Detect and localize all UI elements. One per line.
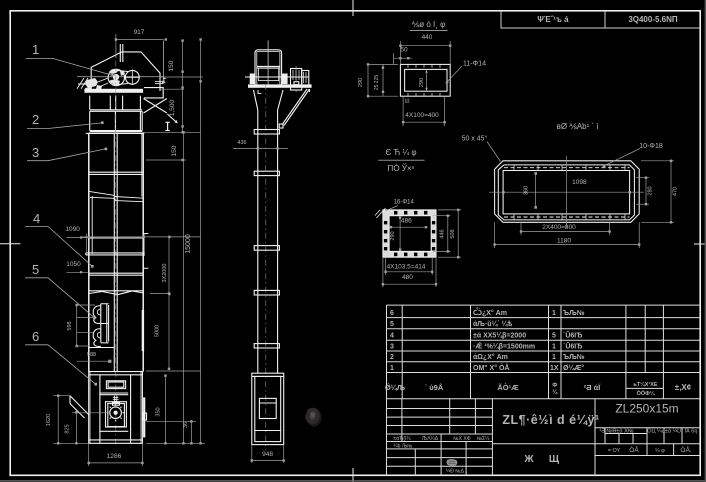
svg-text:¼ƅ Љ№: ¼ƅ Љ№ — [394, 444, 413, 450]
svg-text:290: 290 — [390, 231, 396, 240]
svg-text:ΙΆ 6ŋ: ΙΆ 6ŋ — [685, 429, 698, 435]
svg-text:486: 486 — [401, 218, 412, 225]
svg-text:¹Ƌ №Ɵ: ¹Ƌ №Ɵ — [599, 429, 617, 435]
svg-text:5: 5 — [552, 333, 556, 340]
svg-text:±ά Χ№: ±ά Χ№ — [616, 428, 633, 435]
svg-text:4X100=400: 4X100=400 — [405, 112, 439, 119]
svg-text:440: 440 — [422, 34, 433, 41]
svg-text:1,500: 1,500 — [169, 99, 176, 116]
svg-text:1: 1 — [552, 354, 556, 361]
svg-text:948: 948 — [262, 451, 273, 458]
svg-text:1: 1 — [32, 42, 39, 57]
svg-text:Ф: Ф — [552, 383, 557, 389]
svg-text:6: 6 — [390, 310, 394, 317]
svg-text:⅍ø ó Ι¸ φ: ⅍ø ó Ι¸ φ — [412, 20, 446, 29]
svg-text:ZL¶·ê½ì d é¼ÿ¹: ZL¶·ê½ì d é¼ÿ¹ — [502, 413, 599, 427]
svg-text:΄Ŭ6ΙЂ: ΄Ŭ6ΙЂ — [563, 331, 582, 340]
svg-text:΄Ŭ6ΙЂ: ΄Ŭ6ΙЂ — [563, 342, 582, 351]
svg-text:50 x 45°: 50 x 45° — [462, 135, 488, 143]
svg-text:280: 280 — [648, 186, 654, 195]
svg-text:480: 480 — [402, 274, 413, 281]
svg-text:±ά XΧ5¼β=2000: ±ά XΧ5¼β=2000 — [473, 332, 526, 340]
svg-text:ÃÒ¹Æ: ÃÒ¹Æ — [497, 383, 519, 392]
svg-text:¼Ð №Δ: ¼Ð №Δ — [446, 469, 465, 475]
svg-text:΄ ύ9Å: ΄ ύ9Å — [425, 383, 444, 392]
svg-text:1: 1 — [552, 310, 556, 317]
svg-text:2: 2 — [390, 354, 394, 361]
svg-text:350: 350 — [156, 407, 162, 416]
svg-text:1180: 1180 — [557, 238, 571, 245]
svg-text:1: 1 — [390, 365, 394, 372]
svg-text:290: 290 — [419, 78, 425, 87]
svg-text:825: 825 — [65, 424, 71, 433]
svg-text:10-Φ18: 10-Φ18 — [639, 143, 663, 150]
svg-text:988: 988 — [87, 352, 96, 358]
svg-text:3: 3 — [390, 344, 394, 351]
svg-text:5: 5 — [32, 262, 39, 277]
svg-text:36: 36 — [183, 422, 189, 428]
svg-text:508: 508 — [450, 229, 456, 238]
svg-text:Ø¼Æ°: Ø¼Æ° — [563, 364, 584, 372]
svg-text:·Ǽ ¹%¼β=1500mm: ·Ǽ ¹%¼β=1500mm — [473, 342, 535, 351]
svg-text:598: 598 — [67, 321, 73, 330]
svg-text:= ΟΥ: = ΟΥ — [608, 448, 621, 454]
svg-text:Є Ћ ¼ φ: Є Ћ ¼ φ — [385, 148, 416, 157]
svg-text:1090: 1090 — [65, 226, 80, 233]
svg-text:436: 436 — [237, 140, 246, 146]
svg-text:4: 4 — [390, 333, 394, 340]
svg-text:1286: 1286 — [107, 453, 122, 460]
svg-text:2: 2 — [32, 112, 39, 127]
svg-text:ЪЉ№: ЪЉ№ — [563, 353, 585, 361]
svg-text:άΩ¿Χ° Am: άΩ¿Χ° Am — [473, 353, 508, 361]
svg-text:Ǿ¼Љ: Ǿ¼Љ — [385, 383, 405, 392]
svg-text:917: 917 — [134, 29, 145, 36]
svg-text:№Х ΧΦ: №Х ΧΦ — [453, 436, 470, 442]
svg-text:1050: 1050 — [66, 261, 81, 268]
svg-text:470: 470 — [673, 187, 679, 196]
svg-text:ÒÓФ¼: ÒÓФ¼ — [637, 389, 655, 397]
svg-text:Ш: Ш — [404, 99, 409, 105]
svg-text:2X400=800: 2X400=800 — [542, 224, 576, 231]
svg-text:±,Χ¢: ±,Χ¢ — [675, 383, 692, 392]
svg-text:6: 6 — [32, 329, 39, 344]
svg-text:¼ φ: ¼ φ — [655, 448, 665, 454]
svg-text:3Q400-5.6ΝΠ: 3Q400-5.6ΝΠ — [628, 15, 678, 24]
svg-text:16-Φ14: 16-Φ14 — [394, 200, 415, 206]
svg-text:4X103.5=414: 4X103.5=414 — [387, 264, 426, 271]
svg-text:5000: 5000 — [155, 325, 161, 337]
svg-text:ÒÅ.: ÒÅ. — [680, 445, 691, 454]
svg-text:±ά ¼Ŭ: ±ά ¼Ŭ — [665, 428, 681, 435]
svg-text:1098: 1098 — [572, 179, 587, 186]
svg-text:360: 360 — [524, 186, 530, 195]
svg-text:άЉ·ŭ¼΄ ¼ѣ: άЉ·ŭ¼΄ ¼ѣ — [473, 320, 513, 328]
svg-text:ZL250x15m: ZL250x15m — [615, 402, 678, 416]
svg-text:²Ƌ άΪ: ²Ƌ άΪ — [584, 383, 602, 392]
svg-text:1: 1 — [552, 344, 556, 351]
svg-text:1X: 1X — [550, 365, 559, 372]
svg-text:ьТ¼Χ¹ΧЕ: ьТ¼Χ¹ΧЕ — [633, 381, 657, 388]
svg-text:3X2000: 3X2000 — [162, 264, 168, 283]
svg-text:±άЂ(Ι¼: ±άЂ(Ι¼ — [393, 435, 411, 442]
svg-text:ΨΈˆ¹ъ á: ΨΈˆ¹ъ á — [537, 15, 569, 24]
svg-text:290: 290 — [358, 78, 364, 87]
svg-text:150: 150 — [171, 145, 178, 156]
svg-text:ОЦ ¼ц: ОЦ ¼ц — [647, 429, 665, 435]
svg-text:50: 50 — [400, 47, 408, 54]
svg-text:ЪЉ№: ЪЉ№ — [563, 309, 585, 317]
svg-text:Щ: Щ — [549, 454, 560, 465]
svg-text:5: 5 — [390, 321, 394, 328]
svg-text:11-Φ14: 11-Φ14 — [463, 61, 486, 68]
svg-text:ОΜ" Χ° ÒÅ: ОΜ" Χ° ÒÅ — [473, 363, 509, 372]
svg-text:150: 150 — [168, 60, 175, 71]
svg-text:ÒÅ: ÒÅ — [629, 445, 639, 454]
svg-text:4: 4 — [33, 211, 40, 226]
svg-text:25 225: 25 225 — [374, 75, 380, 91]
svg-text:1620: 1620 — [46, 414, 52, 426]
svg-text:Ж: Ж — [523, 454, 534, 465]
svg-text:ЉΛ¼Δ: ЉΛ¼Δ — [422, 436, 439, 442]
svg-text:15000: 15000 — [185, 234, 192, 254]
svg-text:вØ ⅍Ab¹ ΄ ì: вØ ⅍Ab¹ ΄ ì — [557, 122, 599, 131]
svg-text:ΠÒ Ў×ⁿ: ΠÒ Ў×ⁿ — [388, 164, 415, 173]
svg-text:№Σ¼: №Σ¼ — [477, 436, 490, 442]
svg-text:3: 3 — [32, 145, 39, 160]
svg-text:446: 446 — [440, 229, 446, 238]
